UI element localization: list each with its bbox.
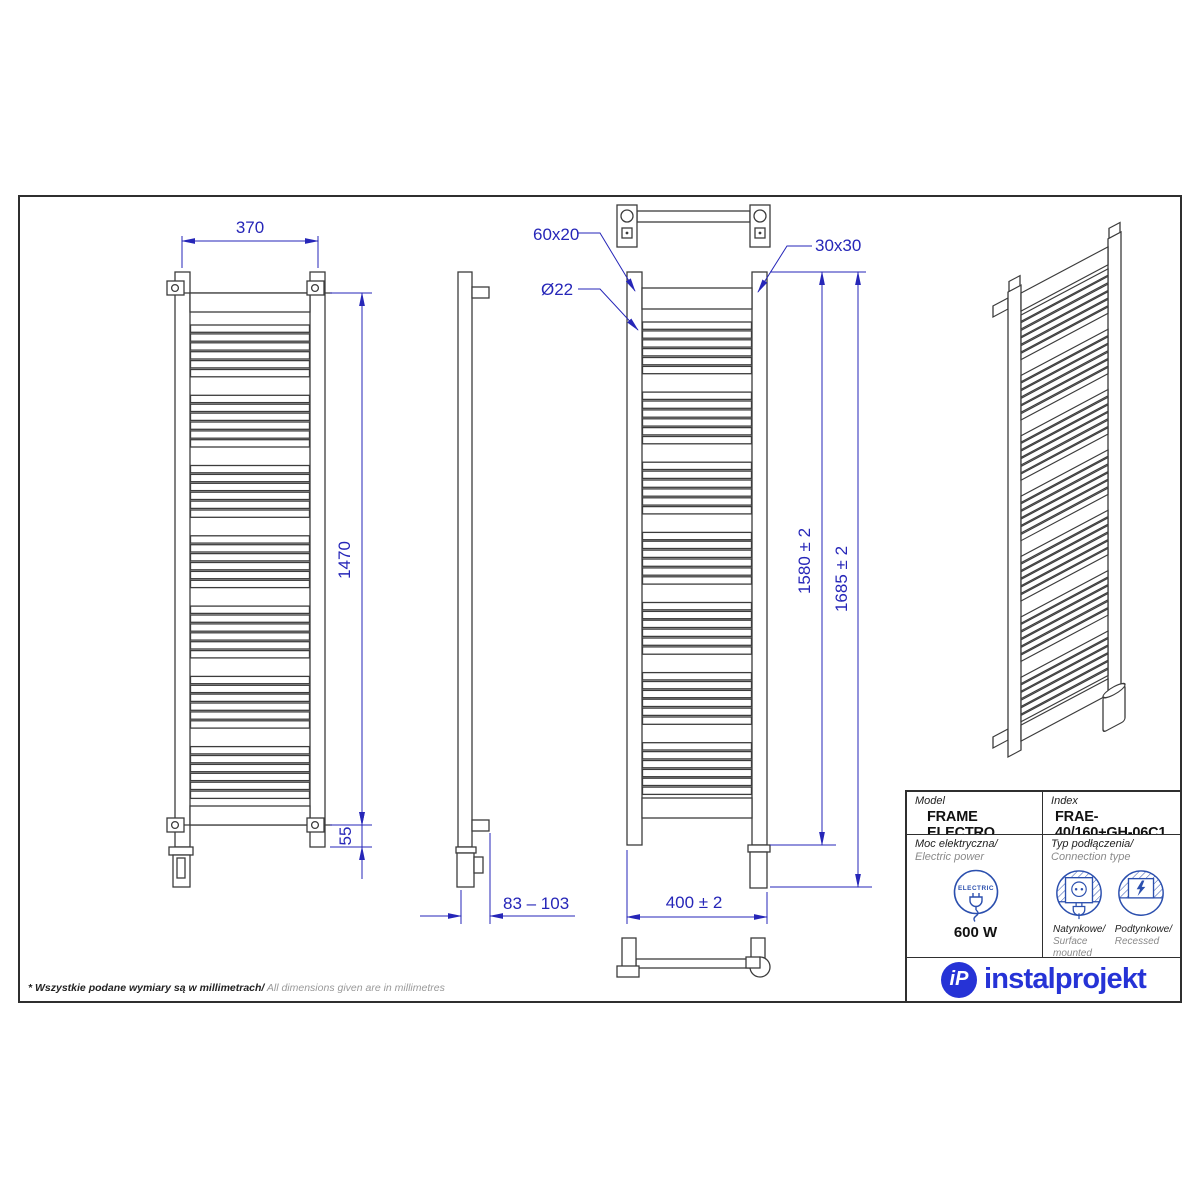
index-cell: Index FRAE-40/160+GH-06C1 bbox=[1042, 792, 1180, 834]
rung bbox=[191, 370, 310, 377]
rung bbox=[191, 685, 310, 692]
electric-badge-icon: ELECTRIC bbox=[951, 868, 1001, 922]
rung bbox=[643, 673, 752, 680]
rung bbox=[643, 322, 752, 329]
rung bbox=[191, 642, 310, 649]
rung bbox=[191, 651, 310, 658]
rung bbox=[191, 703, 310, 710]
rung bbox=[643, 428, 752, 435]
rung bbox=[191, 694, 310, 701]
recessed-icon bbox=[1115, 868, 1167, 922]
brand-name: instalprojekt bbox=[984, 963, 1146, 996]
rung bbox=[643, 620, 752, 627]
rung bbox=[191, 676, 310, 683]
rung bbox=[643, 743, 752, 750]
bottom-flat-bar bbox=[642, 798, 752, 818]
rung bbox=[191, 791, 310, 798]
rung bbox=[191, 756, 310, 763]
rung bbox=[643, 559, 752, 566]
rung bbox=[643, 331, 752, 338]
brand-row: iP instalprojekt bbox=[907, 957, 1180, 1001]
bracket-icon bbox=[472, 287, 489, 298]
front-view-dimensioned: 60x20 Ø22 30x30 400 ± 2 1580 ± 2 1685 ± … bbox=[533, 225, 872, 924]
rung bbox=[643, 611, 752, 618]
rung bbox=[643, 761, 752, 768]
rung bbox=[643, 489, 752, 496]
recessed-option: Podtynkowe/ Recessed bbox=[1115, 868, 1172, 957]
rung bbox=[191, 343, 310, 350]
dim-total-width: 400 ± 2 bbox=[666, 893, 723, 912]
heating-element bbox=[748, 845, 770, 888]
rung bbox=[643, 366, 752, 373]
instalprojekt-logo-icon: iP bbox=[941, 962, 977, 998]
bracket-icon bbox=[472, 820, 489, 831]
dim-height-inner: 1580 ± 2 bbox=[795, 528, 814, 594]
rung bbox=[643, 541, 752, 548]
dim-height-total: 1685 ± 2 bbox=[832, 546, 851, 612]
index-label: Index bbox=[1051, 795, 1174, 807]
rung bbox=[191, 545, 310, 552]
rung bbox=[643, 690, 752, 697]
iso-rungs bbox=[1021, 269, 1108, 722]
rung bbox=[191, 721, 310, 728]
rung bbox=[643, 769, 752, 776]
dim-profile: 30x30 bbox=[815, 236, 861, 255]
top-flat-bar bbox=[190, 293, 310, 312]
rung bbox=[191, 580, 310, 587]
rung bbox=[191, 334, 310, 341]
power-label: Moc elektryczna/ Electric power bbox=[915, 838, 1036, 864]
top-view bbox=[617, 205, 770, 247]
model-label: Model bbox=[915, 795, 1036, 807]
rung bbox=[191, 554, 310, 561]
index-value: FRAE-40/160+GH-06C1 bbox=[1051, 809, 1174, 834]
rung bbox=[643, 550, 752, 557]
rung bbox=[643, 410, 752, 417]
rung bbox=[191, 536, 310, 543]
surface-mounted-option: Natynkowe/ Surface mounted bbox=[1053, 868, 1115, 957]
rung bbox=[643, 787, 752, 794]
isometric-view bbox=[993, 220, 1125, 791]
rung bbox=[191, 712, 310, 719]
rung bbox=[191, 510, 310, 517]
rung bbox=[191, 474, 310, 481]
dim-axis-height: 1470 bbox=[335, 541, 354, 579]
surface-mounted-caption: Natynkowe/ Surface mounted bbox=[1053, 924, 1115, 957]
rung bbox=[643, 752, 752, 759]
rung bbox=[191, 431, 310, 438]
rung bbox=[191, 352, 310, 359]
power-value: 600 W bbox=[915, 924, 1036, 941]
rung bbox=[191, 501, 310, 508]
rung bbox=[643, 419, 752, 426]
rung bbox=[191, 764, 310, 771]
rung bbox=[191, 633, 310, 640]
rung bbox=[643, 717, 752, 724]
svg-text:ELECTRIC: ELECTRIC bbox=[958, 885, 994, 892]
surface-mounted-icon bbox=[1053, 868, 1105, 922]
rung bbox=[643, 507, 752, 514]
rung bbox=[643, 708, 752, 715]
dimensions-footnote: * Wszystkie podane wymiary są w millimet… bbox=[28, 982, 445, 994]
rung bbox=[643, 358, 752, 365]
rung bbox=[191, 466, 310, 473]
rung bbox=[191, 615, 310, 622]
heating-element bbox=[456, 847, 483, 887]
dim-wall-distance: 83 – 103 bbox=[503, 894, 569, 913]
rung bbox=[643, 498, 752, 505]
rung bbox=[643, 532, 752, 539]
rung bbox=[643, 401, 752, 408]
rung bbox=[191, 747, 310, 754]
heating-element bbox=[169, 847, 193, 887]
rung bbox=[191, 492, 310, 499]
rung bbox=[643, 471, 752, 478]
rung bbox=[643, 340, 752, 347]
rung bbox=[643, 647, 752, 654]
connection-type-cell: Typ podłączenia/ Connection type bbox=[1042, 835, 1180, 957]
connection-label: Typ podłączenia/ Connection type bbox=[1051, 838, 1174, 864]
rung bbox=[191, 571, 310, 578]
rung bbox=[643, 480, 752, 487]
top-flat-bar bbox=[642, 288, 752, 309]
rung bbox=[643, 778, 752, 785]
rung bbox=[191, 773, 310, 780]
rung bbox=[191, 606, 310, 613]
rung bbox=[191, 395, 310, 402]
rung bbox=[643, 349, 752, 356]
rung bbox=[191, 413, 310, 420]
dim-top-width: 370 bbox=[236, 218, 264, 237]
rung bbox=[643, 577, 752, 584]
rung bbox=[191, 422, 310, 429]
rung bbox=[643, 682, 752, 689]
rung bbox=[191, 782, 310, 789]
recessed-caption: Podtynkowe/ Recessed bbox=[1115, 924, 1172, 948]
rung bbox=[191, 483, 310, 490]
dim-round-tube: Ø22 bbox=[541, 280, 573, 299]
rung bbox=[643, 437, 752, 444]
rung bbox=[191, 404, 310, 411]
side-view: 83 – 103 bbox=[420, 272, 575, 924]
spec-table: Model FRAME ELECTRO Index FRAE-40/160+GH… bbox=[905, 790, 1182, 1003]
technical-drawing: 370 1470 55 bbox=[0, 0, 1200, 1200]
model-value: FRAME ELECTRO bbox=[915, 809, 1036, 834]
rung bbox=[643, 638, 752, 645]
bottom-flat-bar bbox=[190, 806, 310, 825]
front-view: 370 1470 55 bbox=[167, 218, 372, 887]
dim-bottom-offset: 55 bbox=[336, 827, 355, 846]
rung bbox=[191, 325, 310, 332]
rung bbox=[191, 624, 310, 631]
front-rungs bbox=[643, 322, 752, 794]
rung bbox=[191, 361, 310, 368]
front-rungs bbox=[191, 325, 310, 798]
rung bbox=[191, 440, 310, 447]
rung bbox=[643, 603, 752, 610]
datasheet-page: 370 1470 55 bbox=[0, 0, 1200, 1200]
dim-flat-tube: 60x20 bbox=[533, 225, 579, 244]
model-cell: Model FRAME ELECTRO bbox=[907, 792, 1042, 834]
rung bbox=[643, 699, 752, 706]
rung bbox=[191, 563, 310, 570]
rung bbox=[643, 462, 752, 469]
bottom-view bbox=[617, 938, 770, 977]
rung bbox=[643, 629, 752, 636]
electric-power-cell: Moc elektryczna/ Electric power ELECTRIC bbox=[907, 835, 1042, 957]
rung bbox=[643, 392, 752, 399]
rung bbox=[643, 568, 752, 575]
